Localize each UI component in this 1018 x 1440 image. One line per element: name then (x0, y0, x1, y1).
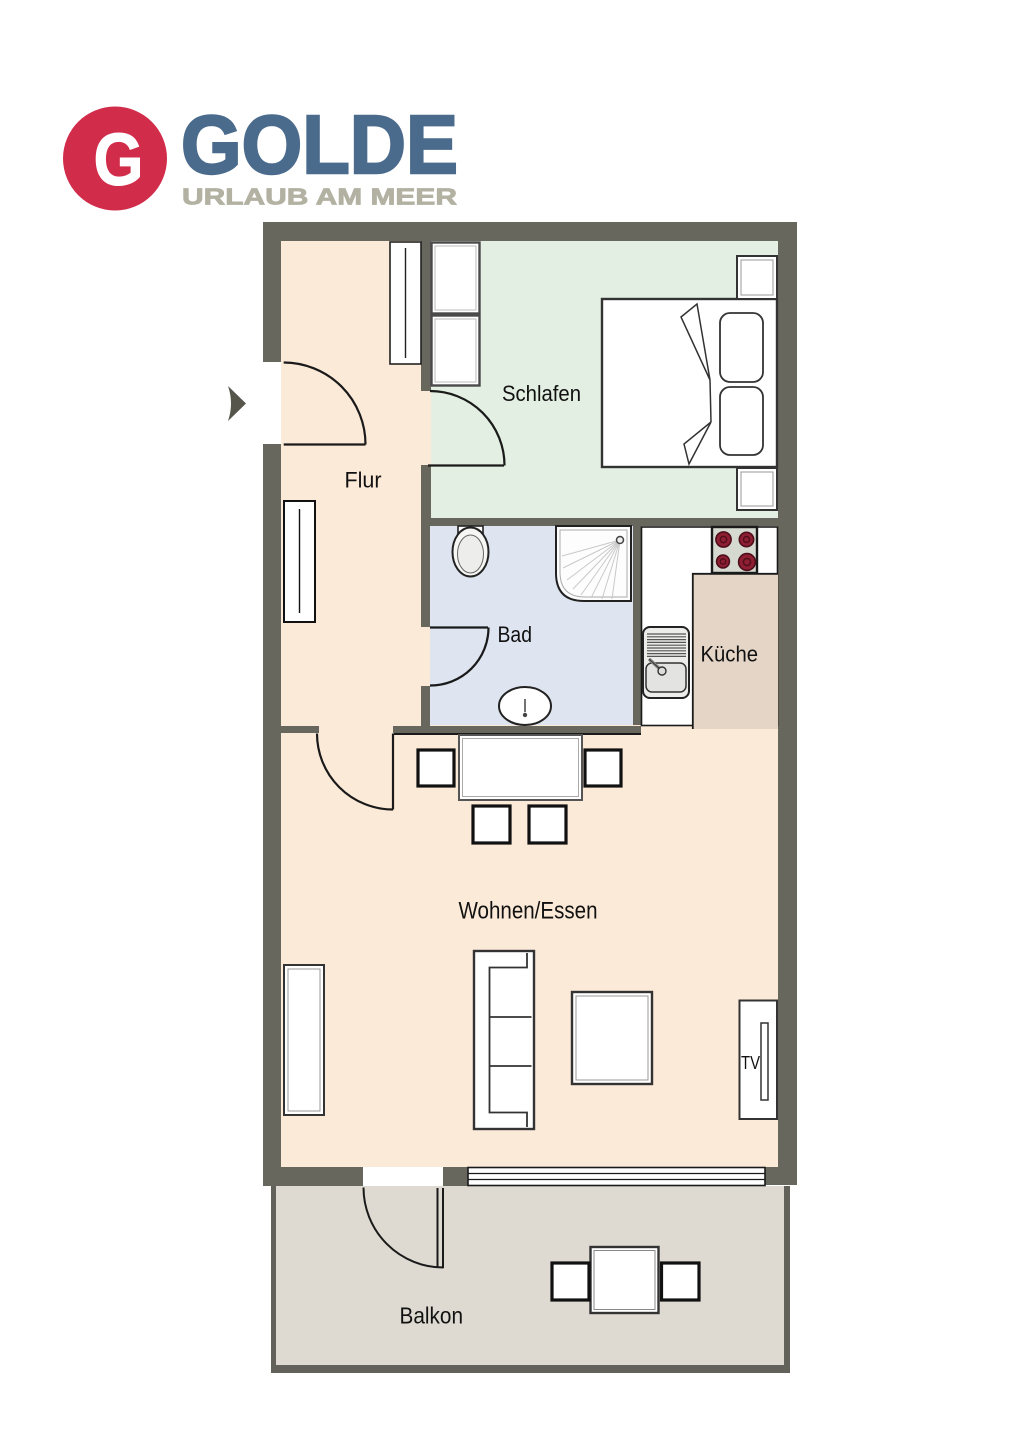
svg-text:GOLDE: GOLDE (181, 98, 458, 191)
svg-text:G: G (94, 118, 144, 201)
svg-text:Wohnen/Essen: Wohnen/Essen (459, 898, 598, 925)
svg-text:URLAUB AM MEER: URLAUB AM MEER (182, 184, 457, 210)
svg-text:Bad: Bad (498, 622, 533, 647)
svg-text:Balkon: Balkon (400, 1303, 464, 1329)
svg-text:Schlafen: Schlafen (502, 381, 581, 406)
svg-text:Flur: Flur (345, 468, 382, 493)
svg-text:Küche: Küche (701, 642, 759, 667)
svg-text:TV: TV (741, 1053, 760, 1073)
